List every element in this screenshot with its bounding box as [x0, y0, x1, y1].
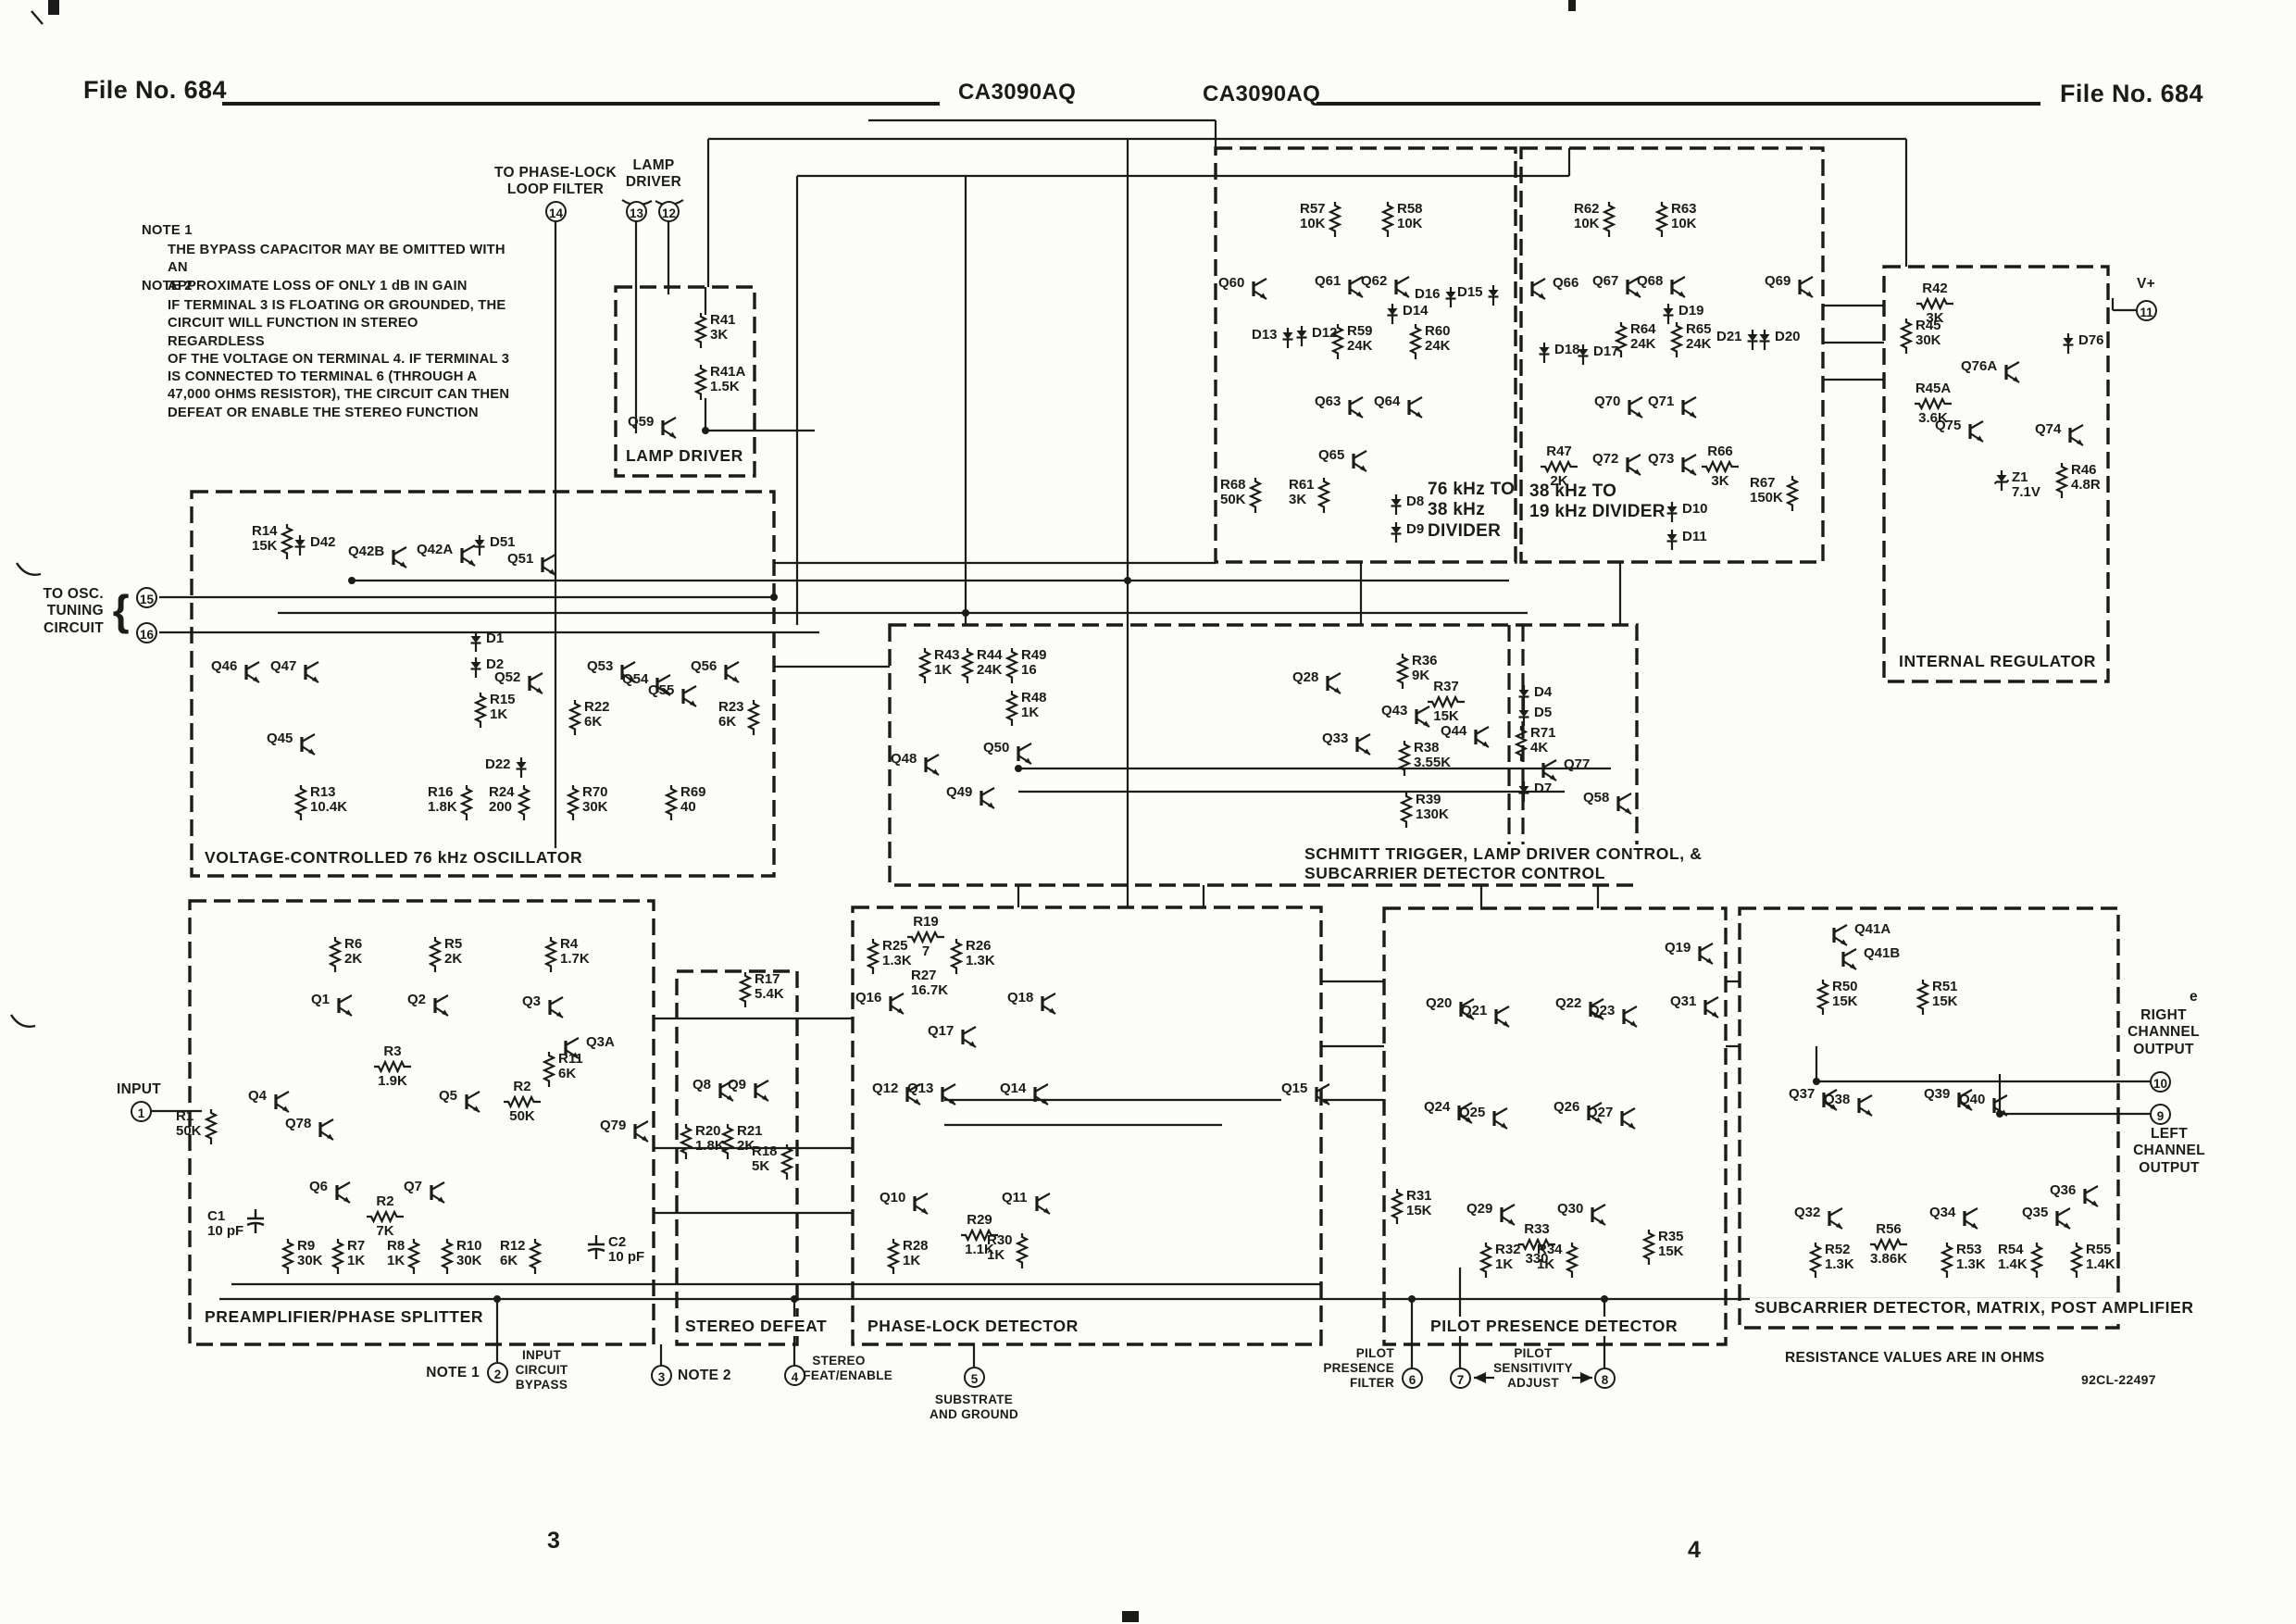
part-label: R201.8K	[695, 1124, 725, 1154]
part-q45: Q45	[267, 731, 319, 757]
part-label: Q70	[1594, 394, 1620, 409]
part-q5: Q5	[439, 1089, 484, 1115]
part-label: R481K	[1021, 691, 1047, 720]
part-q18: Q18	[1007, 991, 1060, 1017]
note-2: NOTE 2IF TERMINAL 3 IS FLOATING OR GROUN…	[142, 278, 512, 422]
part-r2: R27K	[367, 1194, 404, 1239]
part-label: R341K	[1537, 1243, 1563, 1272]
part-label: R261.3K	[966, 939, 995, 968]
part-value: 7	[922, 944, 930, 959]
part-label: D4	[1534, 685, 1552, 700]
part-label: D15	[1457, 285, 1483, 300]
part-label: R3515K	[1658, 1230, 1684, 1259]
part-r68: R6850K	[1220, 478, 1262, 513]
part-label: Q55	[648, 683, 674, 698]
substrate-and-ground: SUBSTRATEAND GROUND	[930, 1393, 1018, 1422]
part-label: D8	[1406, 494, 1424, 509]
part-label: R24200	[489, 785, 515, 815]
part-r67: R67150K	[1750, 476, 1799, 511]
part-label: R52K	[444, 937, 462, 967]
annotation-line: TO OSC.	[43, 586, 104, 603]
part-label: R5015K	[1832, 980, 1858, 1009]
part-q9: Q9	[728, 1078, 773, 1104]
part-q61: Q61	[1315, 274, 1367, 300]
part-label: R236K	[718, 700, 744, 730]
part-label: R4916	[1021, 648, 1047, 678]
part-label: R301K	[987, 1233, 1013, 1263]
part-q71: Q71	[1648, 394, 1701, 420]
part-r4: R41.7K	[544, 937, 590, 972]
annotation-line: SENSITIVITY	[1493, 1361, 1573, 1376]
part-c2: C210 pF	[587, 1235, 644, 1265]
block-title-regulator: INTERNAL REGULATOR	[1894, 652, 2101, 671]
annotation-line: 19 kHz DIVIDER	[1529, 502, 1666, 522]
part-label: Q34	[1929, 1206, 1955, 1220]
part-label: Q2	[407, 993, 426, 1007]
part-q28: Q28	[1292, 670, 1345, 696]
part-q48: Q48	[891, 752, 943, 778]
part-label: R37	[1433, 680, 1459, 694]
annotation-line: 92CL-22497	[2081, 1372, 2156, 1388]
terminal-3: 3	[651, 1365, 672, 1386]
part-r41: R413K	[694, 313, 736, 348]
annotation-line: CHANNEL	[2128, 1024, 2200, 1041]
part-q6: Q6	[309, 1180, 355, 1206]
part-label: Q36	[2050, 1183, 2076, 1198]
part-label: Q9	[728, 1078, 746, 1093]
annotation-line: BYPASS	[516, 1378, 568, 1393]
part-d17: D17	[1576, 344, 1619, 365]
part-q49: Q49	[946, 785, 999, 811]
annotation-line: INPUT	[516, 1348, 568, 1363]
part-label: D42	[310, 535, 336, 550]
part-label: D1	[486, 631, 504, 646]
part-q59: Q59	[628, 415, 680, 441]
part-q13: Q13	[907, 1081, 960, 1107]
annotation-line: {	[113, 585, 130, 635]
annotation-line: CIRCUIT	[516, 1363, 568, 1378]
part-label: Q52	[494, 670, 520, 685]
annotation-line: INPUT	[117, 1081, 161, 1098]
block-title-stereo-defeat: STEREO DEFEAT	[680, 1317, 831, 1336]
part-label: R383.55K	[1414, 741, 1451, 770]
part-label: Q67	[1592, 274, 1618, 289]
terminal-5: 5	[964, 1367, 985, 1388]
to-osc-tuning-circuit: TO OSC.TUNINGCIRCUIT	[43, 586, 104, 637]
terminal-6: 6	[1402, 1368, 1423, 1389]
terminal-14: 14	[545, 201, 567, 222]
part-label: Q40	[1959, 1093, 1985, 1107]
input-label: INPUT	[117, 1081, 161, 1098]
annotation-line: CHANNEL	[2133, 1143, 2205, 1159]
right-channel-output: RIGHTCHANNELOUTPUT	[2128, 1007, 2200, 1058]
part-r2: R250K	[504, 1080, 541, 1124]
part-label: R150K	[176, 1109, 202, 1139]
part-d11: D11	[1665, 530, 1707, 550]
part-q31: Q31	[1670, 994, 1723, 1020]
part-r50: R5015K	[1816, 980, 1858, 1015]
annotation-line: RIGHT	[2128, 1007, 2200, 1024]
part-q68: Q68	[1637, 274, 1690, 300]
part-label: R6024K	[1425, 324, 1451, 354]
part-q33: Q33	[1322, 731, 1375, 757]
annotation-line: TUNING	[43, 603, 104, 619]
part-r52: R521.3K	[1809, 1243, 1854, 1278]
annotation-line: e	[2190, 989, 2198, 1006]
part-r18: R185K	[752, 1144, 793, 1180]
part-label: Q10	[880, 1191, 905, 1206]
part-r1: R150K	[176, 1109, 218, 1144]
part-label: R4424K	[977, 648, 1003, 678]
part-label: Q41B	[1864, 946, 1900, 961]
annotation-line: OUTPUT	[2128, 1042, 2200, 1058]
part-r28: R281K	[887, 1239, 929, 1274]
left-channel-output: LEFTCHANNELOUTPUT	[2133, 1126, 2205, 1177]
part-label: Q28	[1292, 670, 1318, 685]
part-q65: Q65	[1318, 448, 1371, 474]
part-r25: R251.3K	[867, 939, 912, 974]
part-label: R42	[1922, 281, 1948, 296]
part-q29: Q29	[1466, 1202, 1519, 1228]
part-label: D13	[1252, 328, 1278, 343]
annotation-line: CIRCUIT	[43, 620, 104, 637]
part-label: Q13	[907, 1081, 933, 1096]
annotation-line: 76 kHz TO	[1428, 480, 1515, 500]
part-r9: R930K	[281, 1239, 323, 1274]
part-d76: D76	[2061, 333, 2104, 354]
annotation-line: LAMP	[626, 157, 681, 174]
part-label: R45A	[1915, 381, 1951, 396]
part-r58: R5810K	[1381, 202, 1423, 237]
block-title-subcarrier: SUBCARRIER DETECTOR, MATRIX, POST AMPLIF…	[1750, 1298, 2199, 1318]
part-label: Q29	[1466, 1202, 1492, 1217]
part-q74: Q74	[2035, 422, 2088, 448]
part-d20: D20	[1757, 330, 1801, 350]
part-label: R185K	[752, 1144, 778, 1174]
part-label: Q35	[2022, 1206, 2048, 1220]
input-circuit-bypass: INPUTCIRCUITBYPASS	[516, 1348, 568, 1393]
part-label: Q61	[1315, 274, 1341, 289]
part-r44: R4424K	[961, 648, 1003, 683]
part-r13: R1310.4K	[294, 785, 347, 820]
annotation-line: SUBSTRATE	[930, 1393, 1018, 1407]
part-label: R5924K	[1347, 324, 1373, 354]
part-q62: Q62	[1361, 274, 1414, 300]
annotation-line: PRESENCE	[1323, 1361, 1394, 1376]
part-r49: R4916	[1005, 648, 1047, 683]
annotation-line: DRIVER	[626, 174, 681, 191]
part-label: R39130K	[1416, 793, 1449, 822]
terminal-16: 16	[136, 622, 157, 643]
note-line: THE BYPASS CAPACITOR MAY BE OMITTED WITH…	[168, 242, 512, 277]
part-r23: R236K	[718, 700, 760, 735]
part-q56: Q56	[691, 659, 743, 685]
part-q30: Q30	[1557, 1202, 1610, 1228]
part-label: Q64	[1374, 394, 1400, 409]
part-value: 50K	[509, 1109, 535, 1124]
part-label: C110 pF	[207, 1209, 243, 1239]
part-label: R281K	[903, 1239, 929, 1268]
part-label: Q14	[1000, 1081, 1026, 1096]
part-r24: R24200	[489, 785, 530, 820]
schematic-layer: NOTE 1THE BYPASS CAPACITOR MAY BE OMITTE…	[0, 0, 2296, 1624]
part-label: R47	[1546, 444, 1572, 459]
part-r48: R481K	[1005, 691, 1047, 726]
annotation-line: DIVIDER	[1428, 521, 1515, 542]
part-label: R6310K	[1671, 202, 1697, 231]
part-r47: R472K	[1541, 444, 1578, 489]
part-q76a: Q76A	[1961, 359, 2024, 385]
part-r41a: R41A1.5K	[694, 365, 745, 400]
part-label: Q60	[1218, 276, 1244, 291]
annotation-line: PILOT	[1493, 1346, 1573, 1361]
part-label: R5810K	[1397, 202, 1423, 231]
part-label: R1310.4K	[310, 785, 347, 815]
part-label: Q68	[1637, 274, 1663, 289]
part-r55: R551.4K	[2070, 1243, 2115, 1278]
annotation-line: V+	[2137, 276, 2155, 293]
part-r12: R126K	[500, 1239, 542, 1274]
part-label: Q38	[1824, 1093, 1850, 1107]
part-label: R41A1.5K	[710, 365, 745, 394]
part-label: D5	[1534, 706, 1552, 720]
part-label: Q25	[1459, 1106, 1485, 1120]
terminal-12: 12	[658, 201, 680, 222]
part-r46: R464.8R	[2055, 463, 2101, 498]
part-q72: Q72	[1592, 452, 1645, 478]
part-label: Q69	[1765, 274, 1791, 289]
block-title-preamp: PREAMPLIFIER/PHASE SPLITTER	[200, 1307, 488, 1327]
part-label: Q79	[600, 1118, 626, 1133]
part-r26: R261.3K	[950, 939, 995, 974]
part-r43: R431K	[918, 648, 960, 683]
part-label: Q76A	[1961, 359, 1997, 374]
margin-letter: e	[2190, 989, 2198, 1006]
part-label: R541.4K	[1998, 1243, 2028, 1272]
part-label: Q6	[309, 1180, 328, 1194]
block-title-lamp-driver: LAMP DRIVER	[621, 446, 748, 466]
part-q34: Q34	[1929, 1206, 1982, 1231]
part-label: R81K	[387, 1239, 405, 1268]
part-d8: D8	[1389, 494, 1424, 515]
part-q23: Q23	[1589, 1004, 1641, 1030]
part-label: R2	[513, 1080, 530, 1094]
note-line: IF TERMINAL 3 IS FLOATING OR GROUNDED, T…	[168, 297, 512, 315]
part-label: R5710K	[1300, 202, 1326, 231]
note-title: NOTE 2	[142, 278, 512, 295]
part-label: R29	[967, 1213, 992, 1228]
note-line: CIRCUIT WILL FUNCTION IN STEREO REGARDLE…	[168, 315, 512, 350]
pilot-presence-filter: PILOTPRESENCEFILTER	[1323, 1346, 1394, 1391]
block-title-vco: VOLTAGE-CONTROLLED 76 kHz OSCILLATOR	[200, 848, 587, 868]
part-label: R7030K	[582, 785, 608, 815]
part-r30: R301K	[987, 1233, 1029, 1268]
part-label: Q24	[1424, 1100, 1450, 1115]
part-r8: R81K	[387, 1239, 420, 1274]
part-label: R6850K	[1220, 478, 1246, 507]
part-label: Q71	[1648, 394, 1674, 409]
part-label: R464.8R	[2071, 463, 2101, 493]
part-label: Q54	[622, 672, 648, 687]
part-q60: Q60	[1218, 276, 1271, 302]
part-label: R226K	[584, 700, 610, 730]
part-label: Q65	[1318, 448, 1344, 463]
note2-ref: NOTE 2	[678, 1368, 731, 1384]
part-q64: Q64	[1374, 394, 1427, 420]
part-label: R151K	[490, 693, 516, 722]
part-label: Q58	[1583, 791, 1609, 806]
part-q32: Q32	[1794, 1206, 1847, 1231]
part-label: Q66	[1553, 276, 1578, 291]
part-label: R3	[383, 1044, 401, 1059]
part-label: Q4	[248, 1089, 267, 1104]
part-label: Q3A	[586, 1035, 615, 1050]
part-label: R67150K	[1750, 476, 1783, 506]
part-r61: R613K	[1289, 478, 1330, 513]
part-r6: R62K	[329, 937, 362, 972]
part-r53: R531.3K	[1940, 1243, 1986, 1278]
lamp-driver-pins: LAMPDRIVER	[626, 157, 681, 192]
part-value: 3K	[1711, 474, 1728, 489]
part-q79: Q79	[600, 1118, 653, 1144]
part-label: Q17	[928, 1024, 954, 1039]
part-q51: Q51	[507, 552, 560, 578]
part-q27: Q27	[1587, 1106, 1640, 1131]
part-label: D16	[1415, 287, 1441, 302]
part-label: C210 pF	[608, 1235, 644, 1265]
part-label: R321K	[1495, 1243, 1521, 1272]
schematic-page: File No. 684 CA3090AQ CA3090AQ File No. …	[0, 0, 2296, 1624]
part-label: Z17.1V	[2012, 470, 2040, 500]
note-title: NOTE 1	[142, 222, 512, 240]
part-label: Q39	[1924, 1087, 1950, 1102]
part-label: R531.3K	[1956, 1243, 1986, 1272]
part-label: D9	[1406, 522, 1424, 537]
part-label: R66	[1707, 444, 1733, 459]
part-label: Q32	[1794, 1206, 1820, 1220]
part-r56: R563.86K	[1870, 1222, 1907, 1267]
terminal-10: 10	[2150, 1071, 2171, 1093]
part-r60: R6024K	[1409, 324, 1451, 359]
part-q78: Q78	[285, 1117, 338, 1143]
part-r10: R1030K	[441, 1239, 482, 1274]
annotation-line: LOOP FILTER	[494, 181, 617, 198]
part-label: Q63	[1315, 394, 1341, 409]
part-r38: R383.55K	[1398, 741, 1451, 776]
part-q19: Q19	[1665, 941, 1717, 967]
part-label: R6210K	[1574, 202, 1600, 231]
part-label: Q11	[1002, 1191, 1028, 1206]
part-label: Q45	[267, 731, 293, 746]
part-label: Q41A	[1854, 922, 1890, 937]
part-q15: Q15	[1281, 1081, 1334, 1107]
part-q75: Q75	[1935, 418, 1988, 444]
part-label: R4530K	[1915, 319, 1941, 348]
part-label: R41.7K	[560, 937, 590, 967]
part-label: R521.3K	[1825, 1243, 1854, 1272]
part-q16: Q16	[855, 991, 908, 1017]
terminal-11: 11	[2136, 300, 2157, 321]
block-title2-schmitt: SUBCARRIER DETECTOR CONTROL	[1304, 864, 1702, 883]
annotation-line: TO PHASE-LOCK	[494, 165, 617, 181]
part-q11: Q11	[1002, 1191, 1054, 1217]
part-label: Q44	[1441, 724, 1466, 739]
part-q46: Q46	[211, 659, 264, 685]
terminal-1: 1	[131, 1101, 152, 1122]
part-c1: C110 pF	[207, 1209, 265, 1239]
part-label: Q21	[1461, 1004, 1487, 1018]
part-q50: Q50	[983, 741, 1036, 767]
part-label: Q50	[983, 741, 1009, 756]
part-label: Q26	[1554, 1100, 1579, 1115]
part-r7: R71K	[331, 1239, 365, 1274]
part-label: D76	[2078, 333, 2104, 348]
part-q58: Q58	[1583, 791, 1636, 817]
part-label: Q42B	[348, 544, 384, 559]
part-r71: R714K	[1515, 726, 1556, 761]
part-q43: Q43	[1381, 704, 1434, 730]
osc-brace: {	[113, 585, 130, 635]
part-q7: Q7	[404, 1180, 449, 1206]
divider1-label: 76 kHz TO38 kHzDIVIDER	[1428, 480, 1515, 542]
part-r63: R6310K	[1655, 202, 1697, 237]
part-label: Q30	[1557, 1202, 1583, 1217]
part-q77: Q77	[1537, 757, 1590, 783]
part-q3: Q3	[522, 994, 568, 1020]
part-label: Q75	[1935, 418, 1961, 433]
part-label: Q47	[270, 659, 296, 674]
part-label: R56	[1876, 1222, 1902, 1237]
part-label: Q1	[311, 993, 330, 1007]
part-label: R5115K	[1932, 980, 1958, 1009]
block-title-pilot-presence: PILOT PRESENCE DETECTOR	[1426, 1317, 1682, 1336]
part-label: R6424K	[1630, 322, 1656, 352]
part-label: D11	[1682, 530, 1707, 544]
part-label: Q12	[872, 1081, 898, 1096]
part-label: D21	[1716, 330, 1742, 344]
terminal-8: 8	[1594, 1368, 1616, 1389]
part-value: 1.9K	[378, 1074, 407, 1089]
part-r39: R39130K	[1400, 793, 1449, 828]
part-label: Q20	[1426, 996, 1452, 1011]
part-d21: D21	[1716, 330, 1760, 350]
part-label: Q42A	[417, 543, 453, 557]
part-r62: R6210K	[1574, 202, 1616, 237]
part-r66: R663K	[1702, 444, 1739, 489]
part-q70: Q70	[1594, 394, 1647, 420]
part-label: R3115K	[1406, 1189, 1432, 1218]
part-label: D14	[1403, 304, 1429, 319]
part-q25: Q25	[1459, 1106, 1512, 1131]
part-label: Q18	[1007, 991, 1033, 1006]
terminal-9: 9	[2150, 1104, 2171, 1125]
part-label: R175.4K	[755, 972, 784, 1002]
part-label: R613K	[1289, 478, 1315, 507]
part-d1: D1	[468, 631, 504, 652]
part-q2: Q2	[407, 993, 453, 1018]
part-label: Q16	[855, 991, 881, 1006]
part-r70: R7030K	[567, 785, 608, 820]
part-q66: Q66	[1526, 276, 1578, 302]
annotation-line: LEFT	[2133, 1126, 2205, 1143]
part-label: Q31	[1670, 994, 1696, 1009]
part-label: Q73	[1648, 452, 1674, 467]
part-r3: R31.9K	[374, 1044, 411, 1089]
part-label: Q8	[693, 1078, 711, 1093]
terminal-2: 2	[487, 1362, 508, 1383]
part-label: Q33	[1322, 731, 1348, 746]
part-d14: D14	[1385, 304, 1429, 324]
